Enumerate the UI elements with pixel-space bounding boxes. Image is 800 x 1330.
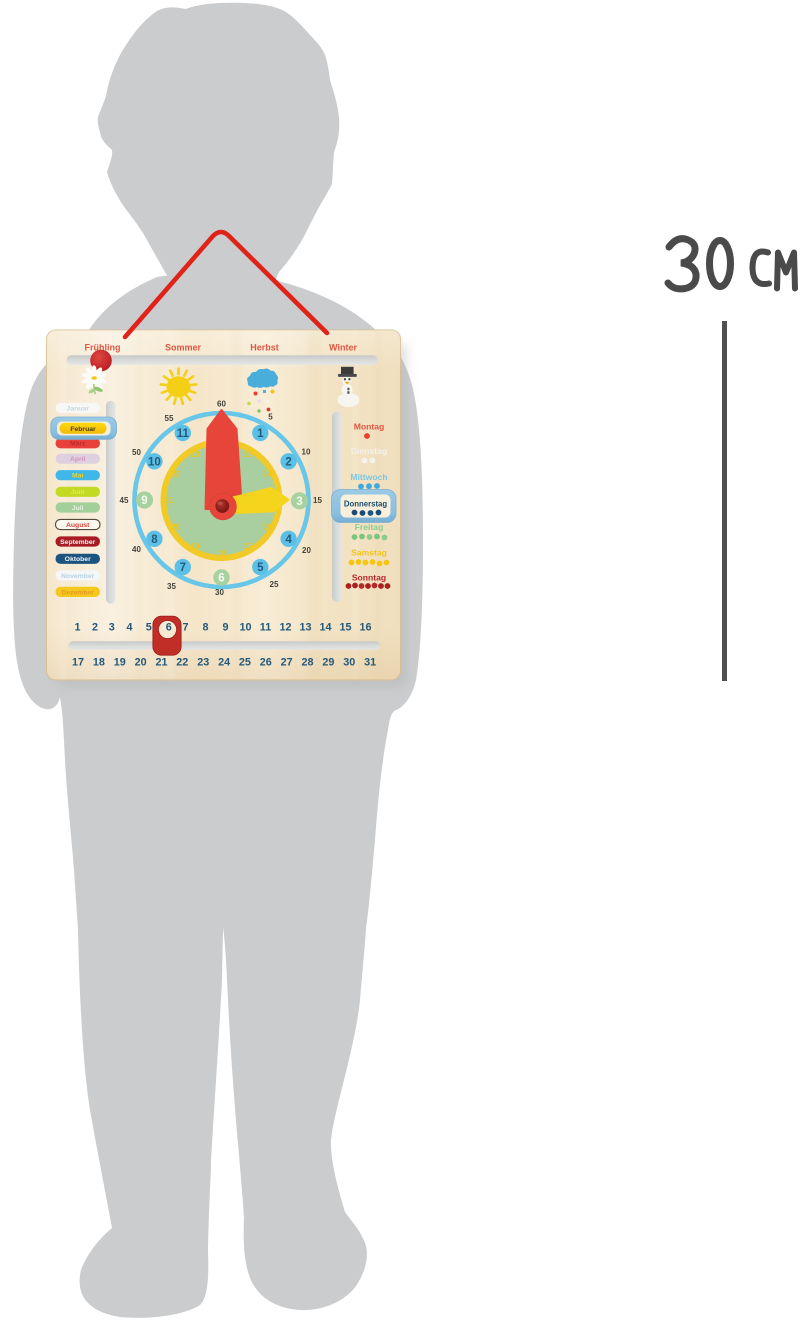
svg-text:23: 23	[197, 657, 209, 669]
svg-text:17: 17	[243, 541, 253, 551]
svg-text:3: 3	[109, 622, 115, 634]
svg-text:28: 28	[301, 657, 313, 669]
svg-text:12: 12	[279, 622, 291, 634]
svg-text:Winter: Winter	[329, 343, 357, 353]
svg-text:Sommer: Sommer	[165, 343, 202, 353]
svg-text:21: 21	[164, 495, 174, 505]
svg-text:Herbst: Herbst	[250, 343, 279, 353]
svg-text:8: 8	[151, 534, 158, 546]
svg-text:20: 20	[135, 657, 147, 669]
svg-text:Juli: Juli	[72, 505, 84, 512]
svg-text:35: 35	[167, 582, 176, 591]
svg-text:November: November	[61, 573, 95, 580]
svg-text:45: 45	[120, 496, 129, 505]
svg-text:Mittwoch: Mittwoch	[350, 472, 387, 482]
svg-text:Dienstag: Dienstag	[351, 446, 387, 456]
svg-text:15: 15	[339, 622, 351, 634]
svg-text:Sonntag: Sonntag	[352, 573, 386, 583]
svg-text:4: 4	[285, 534, 292, 546]
svg-text:April: April	[70, 456, 86, 463]
svg-text:2: 2	[285, 456, 291, 468]
svg-text:19: 19	[190, 541, 200, 551]
svg-text:Samstag: Samstag	[351, 548, 387, 558]
svg-text:21: 21	[155, 657, 167, 669]
svg-text:13: 13	[243, 449, 253, 459]
svg-text:6: 6	[166, 622, 172, 634]
svg-text:3: 3	[296, 496, 302, 508]
svg-text:22: 22	[171, 469, 181, 479]
svg-text:Freitag: Freitag	[355, 522, 384, 532]
svg-text:Dezember: Dezember	[61, 589, 94, 596]
svg-text:60: 60	[217, 400, 226, 409]
svg-text:15: 15	[313, 496, 322, 505]
svg-text:14: 14	[319, 622, 331, 634]
svg-text:25: 25	[239, 657, 251, 669]
svg-text:4: 4	[126, 622, 132, 634]
svg-text:7: 7	[180, 562, 186, 574]
svg-text:10: 10	[239, 622, 251, 634]
svg-text:16: 16	[263, 522, 273, 532]
svg-text:Montag: Montag	[354, 422, 385, 432]
svg-text:9: 9	[222, 622, 228, 634]
svg-text:17: 17	[72, 657, 84, 669]
svg-text:13: 13	[299, 622, 311, 634]
svg-text:26: 26	[260, 657, 272, 669]
svg-text:Oktober: Oktober	[65, 556, 91, 563]
svg-text:55: 55	[165, 414, 174, 423]
svg-text:6: 6	[218, 573, 224, 585]
svg-text:19: 19	[114, 657, 126, 669]
svg-text:14: 14	[263, 469, 273, 479]
svg-text:27: 27	[281, 657, 293, 669]
svg-text:Januar: Januar	[67, 405, 90, 412]
svg-text:September: September	[60, 539, 95, 546]
svg-text:18: 18	[93, 657, 105, 669]
svg-text:30: 30	[343, 657, 355, 669]
svg-text:5: 5	[257, 562, 264, 574]
svg-text:11: 11	[260, 622, 271, 634]
svg-text:11: 11	[177, 428, 190, 440]
svg-text:18: 18	[217, 548, 227, 558]
svg-text:5: 5	[268, 413, 273, 422]
svg-text:10: 10	[148, 456, 161, 468]
svg-text:1: 1	[74, 622, 80, 634]
svg-text:Mai: Mai	[72, 473, 83, 480]
svg-text:10: 10	[302, 448, 311, 457]
svg-text:9: 9	[141, 495, 147, 507]
svg-text:2: 2	[92, 622, 98, 634]
svg-text:20: 20	[302, 546, 311, 555]
svg-text:40: 40	[132, 545, 141, 554]
svg-text:August: August	[66, 522, 90, 529]
svg-text:25: 25	[270, 580, 279, 589]
svg-text:31: 31	[364, 657, 376, 669]
svg-text:22: 22	[176, 657, 188, 669]
svg-text:29: 29	[322, 657, 334, 669]
svg-text:5: 5	[146, 622, 152, 634]
svg-text:24: 24	[218, 657, 230, 669]
svg-text:Donnerstag: Donnerstag	[344, 500, 388, 509]
svg-text:1: 1	[257, 428, 264, 440]
svg-text:Februar: Februar	[70, 426, 96, 433]
svg-text:50: 50	[132, 448, 141, 457]
svg-text:8: 8	[202, 622, 208, 634]
svg-text:Juni: Juni	[71, 489, 85, 496]
svg-text:16: 16	[359, 622, 371, 634]
svg-text:März: März	[70, 441, 86, 448]
svg-text:20: 20	[171, 522, 181, 532]
svg-text:23: 23	[190, 449, 200, 459]
svg-text:7: 7	[182, 622, 188, 634]
svg-text:30: 30	[215, 588, 224, 597]
